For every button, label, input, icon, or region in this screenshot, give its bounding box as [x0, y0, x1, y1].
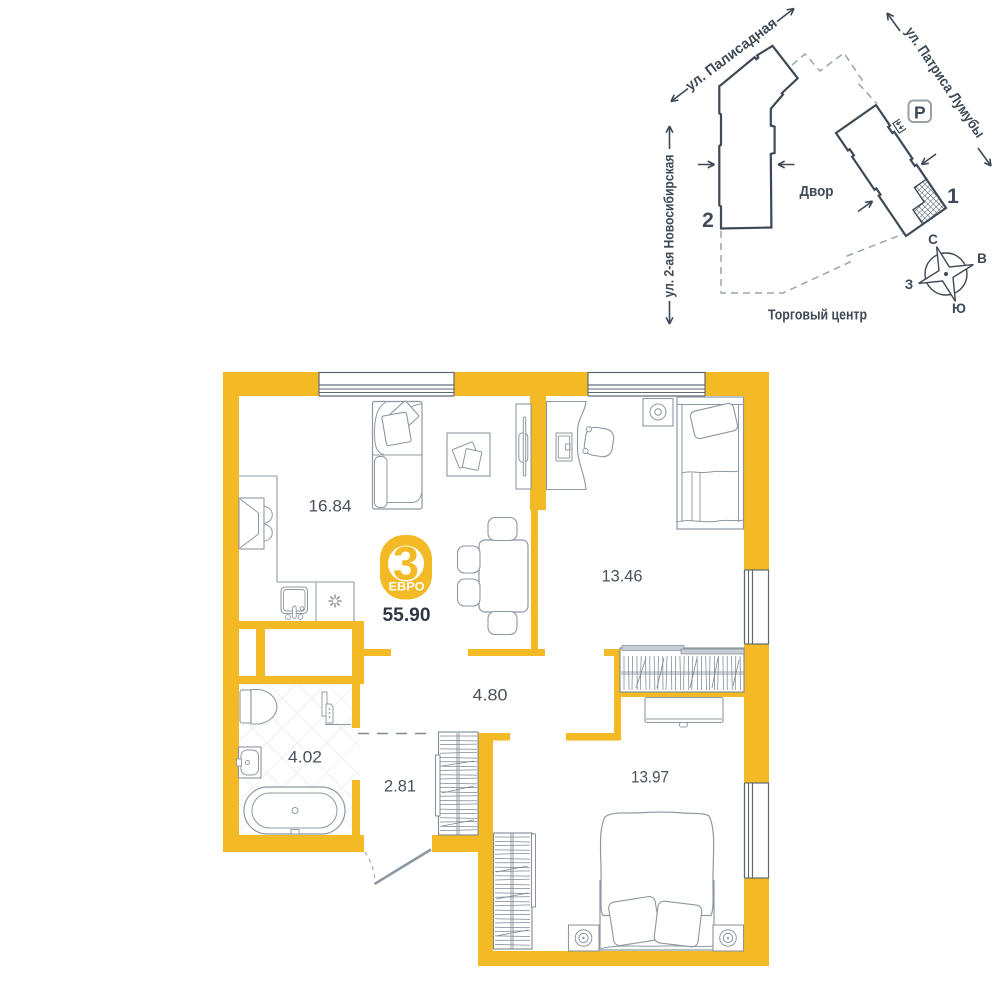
svg-text:Ю: Ю	[952, 301, 966, 316]
svg-text:З: З	[905, 277, 913, 292]
svg-text:ул. 2-ая Новосибирская: ул. 2-ая Новосибирская	[662, 155, 677, 298]
svg-text:Двор: Двор	[800, 183, 834, 200]
svg-text:2: 2	[702, 209, 714, 232]
svg-text:Торговый центр: Торговый центр	[768, 308, 867, 324]
svg-text:P: P	[914, 102, 926, 122]
svg-text:13.46: 13.46	[602, 567, 643, 586]
svg-text:2.81: 2.81	[384, 777, 416, 796]
svg-text:4.80: 4.80	[473, 686, 508, 705]
svg-text:4.02: 4.02	[288, 748, 322, 767]
svg-text:ЕВРО: ЕВРО	[389, 580, 425, 594]
svg-text:16.84: 16.84	[309, 497, 352, 516]
svg-text:В: В	[977, 251, 987, 266]
svg-text:13.97: 13.97	[631, 768, 669, 787]
svg-text:1: 1	[947, 185, 959, 208]
svg-text:С: С	[928, 232, 938, 247]
svg-text:55.90: 55.90	[383, 605, 431, 626]
